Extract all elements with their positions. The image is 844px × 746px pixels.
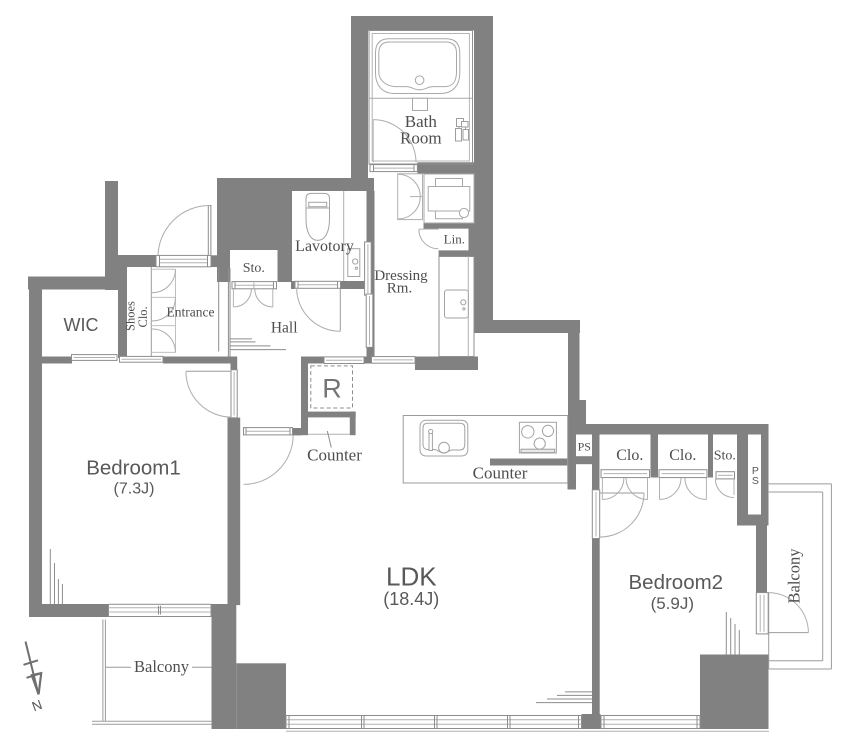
svg-text:Room: Room [400,129,442,148]
svg-text:Rm.: Rm. [387,281,412,297]
svg-text:Balcony: Balcony [785,548,804,604]
svg-text:Sto.: Sto. [714,449,736,464]
svg-text:(5.9J): (5.9J) [651,594,694,613]
svg-text:Clo.: Clo. [616,447,643,464]
svg-text:Lin.: Lin. [444,232,465,247]
svg-text:(7.3J): (7.3J) [114,481,155,498]
svg-text:Counter: Counter [473,464,528,483]
svg-text:LDK: LDK [386,562,437,592]
svg-text:Bedroom2: Bedroom2 [629,571,724,594]
svg-text:Bedroom1: Bedroom1 [86,457,181,480]
svg-text:Sto.: Sto. [243,261,265,276]
svg-text:Entrance: Entrance [167,305,215,320]
svg-text:Balcony: Balcony [134,657,190,676]
svg-text:Clo.: Clo. [136,306,150,327]
svg-text:PS: PS [578,440,591,454]
svg-text:Lavotory: Lavotory [295,238,354,255]
svg-text:(18.4J): (18.4J) [383,589,439,609]
svg-text:S: S [752,475,759,487]
svg-text:Counter: Counter [307,446,362,465]
svg-text:R: R [322,374,342,404]
svg-text:WIC: WIC [64,315,99,335]
svg-text:Clo.: Clo. [669,447,696,464]
svg-text:Hall: Hall [271,320,298,337]
